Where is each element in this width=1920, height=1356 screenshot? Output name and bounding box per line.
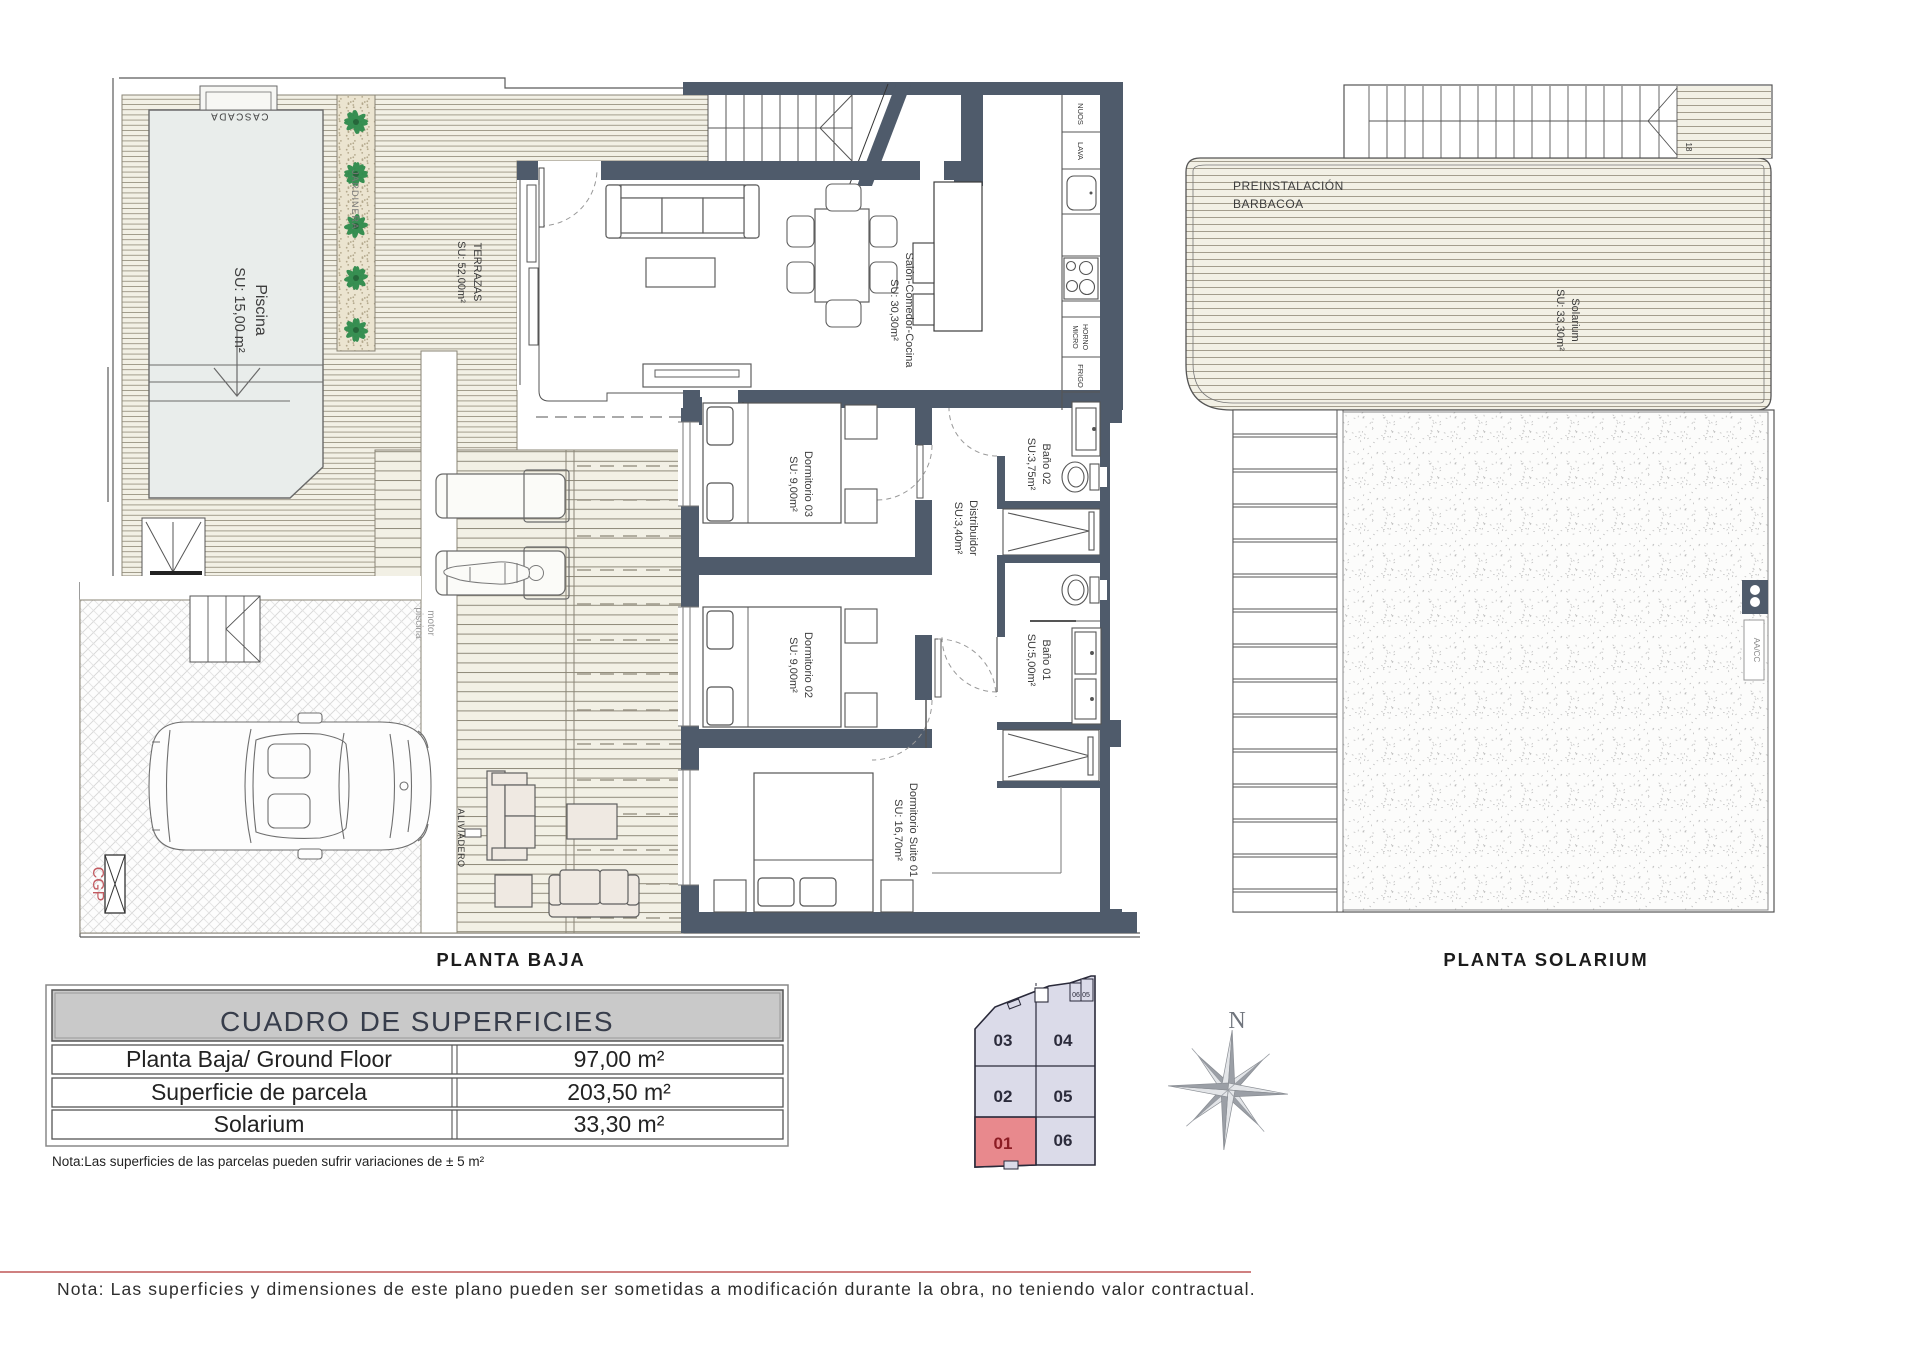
svg-text:JARDINERA: JARDINERA — [350, 170, 360, 230]
svg-text:SU: 9,00m²: SU: 9,00m² — [787, 637, 799, 693]
svg-text:SU: 15,00 m²: SU: 15,00 m² — [231, 267, 247, 353]
svg-text:BARBACOA: BARBACOA — [1233, 197, 1304, 211]
svg-text:Dormitorio 03: Dormitorio 03 — [802, 451, 814, 517]
svg-text:Baño 02: Baño 02 — [1040, 444, 1052, 485]
svg-text:18: 18 — [1684, 143, 1693, 152]
svg-text:Dormitorio Suite 01: Dormitorio Suite 01 — [907, 783, 919, 877]
svg-text:MICRO: MICRO — [1071, 325, 1078, 349]
svg-text:SU: 52,00m²: SU: 52,00m² — [455, 241, 467, 303]
svg-text:piscina: piscina — [413, 607, 424, 639]
svg-text:02: 02 — [994, 1087, 1013, 1106]
svg-text:SU:3,75m²: SU:3,75m² — [1025, 438, 1037, 491]
svg-text:AA/CC: AA/CC — [1752, 638, 1761, 663]
svg-text:06: 06 — [1072, 992, 1080, 999]
svg-text:Superficie de parcela: Superficie de parcela — [151, 1079, 367, 1105]
svg-text:06: 06 — [1054, 1131, 1073, 1150]
svg-text:PLANTA BAJA: PLANTA BAJA — [436, 949, 585, 970]
svg-text:SU: 33,30m²: SU: 33,30m² — [1554, 289, 1566, 351]
svg-text:203,50 m²: 203,50 m² — [567, 1079, 671, 1105]
svg-text:NUOS: NUOS — [1076, 103, 1085, 125]
svg-text:motor: motor — [425, 610, 436, 636]
svg-text:SU: 9,00m²: SU: 9,00m² — [787, 456, 799, 512]
svg-text:33,30 m²: 33,30 m² — [574, 1111, 665, 1137]
svg-text:Planta Baja/ Ground Floor: Planta Baja/ Ground Floor — [126, 1046, 392, 1072]
svg-text:Salón-Comedor-Cocina: Salón-Comedor-Cocina — [903, 253, 915, 369]
svg-text:Nota: Las superficies y dimens: Nota: Las superficies y dimensiones de e… — [57, 1279, 1256, 1299]
svg-text:05: 05 — [1054, 1087, 1073, 1106]
svg-text:SU: 30,30m²: SU: 30,30m² — [888, 279, 900, 341]
svg-text:N: N — [1228, 1008, 1245, 1034]
svg-text:CASCADA: CASCADA — [210, 110, 269, 121]
svg-text:Nota:Las superficies de las pa: Nota:Las superficies de las parcelas pue… — [52, 1154, 485, 1169]
svg-text:Distribuidor: Distribuidor — [967, 500, 979, 556]
svg-text:01: 01 — [994, 1134, 1013, 1153]
svg-text:Solarium: Solarium — [214, 1111, 305, 1137]
svg-text:Dormitorio 02: Dormitorio 02 — [802, 632, 814, 698]
svg-text:97,00 m²: 97,00 m² — [574, 1046, 665, 1072]
svg-text:Solarium: Solarium — [1569, 298, 1581, 341]
svg-text:05: 05 — [1082, 992, 1090, 999]
svg-text:Piscina: Piscina — [252, 284, 269, 336]
svg-text:TERRAZAS: TERRAZAS — [471, 243, 483, 302]
svg-text:PLANTA SOLARIUM: PLANTA SOLARIUM — [1443, 949, 1648, 970]
svg-text:03: 03 — [994, 1031, 1013, 1050]
svg-text:SU:3,40m²: SU:3,40m² — [952, 502, 964, 555]
svg-text:FRIGO: FRIGO — [1076, 364, 1085, 388]
svg-text:HORNO: HORNO — [1081, 324, 1088, 351]
svg-text:04: 04 — [1054, 1031, 1073, 1050]
svg-text:CGP: CGP — [89, 867, 106, 902]
svg-text:SU:5,00m²: SU:5,00m² — [1025, 634, 1037, 687]
svg-text:ALIVIADERO: ALIVIADERO — [456, 808, 466, 867]
svg-text:SU: 16,70m²: SU: 16,70m² — [892, 799, 904, 861]
svg-text:CUADRO DE SUPERFICIES: CUADRO DE SUPERFICIES — [220, 1006, 614, 1037]
svg-text:Baño 01: Baño 01 — [1040, 640, 1052, 681]
svg-text:PREINSTALACIÓN: PREINSTALACIÓN — [1233, 178, 1344, 193]
svg-text:LAVA: LAVA — [1076, 142, 1085, 160]
